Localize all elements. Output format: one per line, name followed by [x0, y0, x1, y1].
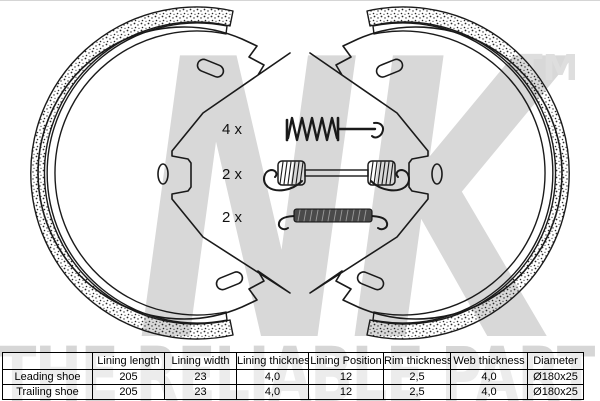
col-header-lining-thickness: Lining thickness: [237, 353, 309, 370]
cell-rim-thickness: 2,5: [384, 370, 451, 385]
cell-lining-thickness: 4,0: [237, 385, 309, 400]
cell-lining-width: 23: [165, 370, 237, 385]
brake-shoe-diagram: 4 x 2 x 2 x: [0, 1, 600, 351]
col-header-diameter: Diameter: [528, 353, 584, 370]
col-header-blank: [3, 353, 93, 370]
brake-shoe-left: [31, 7, 290, 339]
cell-web-thickness: 4,0: [451, 370, 528, 385]
table-row-trailing-shoe: Trailing shoe 205 23 4,0 12 2,5 4,0 Ø180…: [3, 385, 584, 400]
row-label: Leading shoe: [3, 370, 93, 385]
hold-down-spring-icon: [287, 118, 383, 140]
brake-shoe-right: [310, 7, 569, 339]
qty-label-return-spring: 2 x: [222, 166, 243, 183]
cell-rim-thickness: 2,5: [384, 385, 451, 400]
cell-lining-length: 205: [93, 370, 165, 385]
row-label: Trailing shoe: [3, 385, 93, 400]
adjuster-spring-icon: [279, 209, 387, 229]
cell-lining-thickness: 4,0: [237, 370, 309, 385]
spec-table-header-row: Lining length Lining width Lining thickn…: [3, 353, 584, 370]
col-header-web-thickness: Web thickness: [451, 353, 528, 370]
cell-web-thickness: 4,0: [451, 385, 528, 400]
cell-lining-width: 23: [165, 385, 237, 400]
col-header-rim-thickness: Rim thickness: [384, 353, 451, 370]
cell-diameter: Ø180x25: [528, 370, 584, 385]
cell-lining-position: 12: [309, 385, 384, 400]
col-header-lining-position: Lining Position: [309, 353, 384, 370]
table-row-leading-shoe: Leading shoe 205 23 4,0 12 2,5 4,0 Ø180x…: [3, 370, 584, 385]
col-header-lining-length: Lining length: [93, 353, 165, 370]
cell-diameter: Ø180x25: [528, 385, 584, 400]
spec-table: Lining length Lining width Lining thickn…: [2, 352, 584, 400]
cell-lining-length: 205: [93, 385, 165, 400]
catalog-image: NK TM THE RELIABLE PART: [0, 0, 600, 401]
cell-lining-position: 12: [309, 370, 384, 385]
col-header-lining-width: Lining width: [165, 353, 237, 370]
return-spring-icon: [264, 161, 409, 190]
qty-label-adjuster-spring: 2 x: [222, 209, 243, 226]
qty-label-hold-down: 4 x: [222, 121, 243, 138]
